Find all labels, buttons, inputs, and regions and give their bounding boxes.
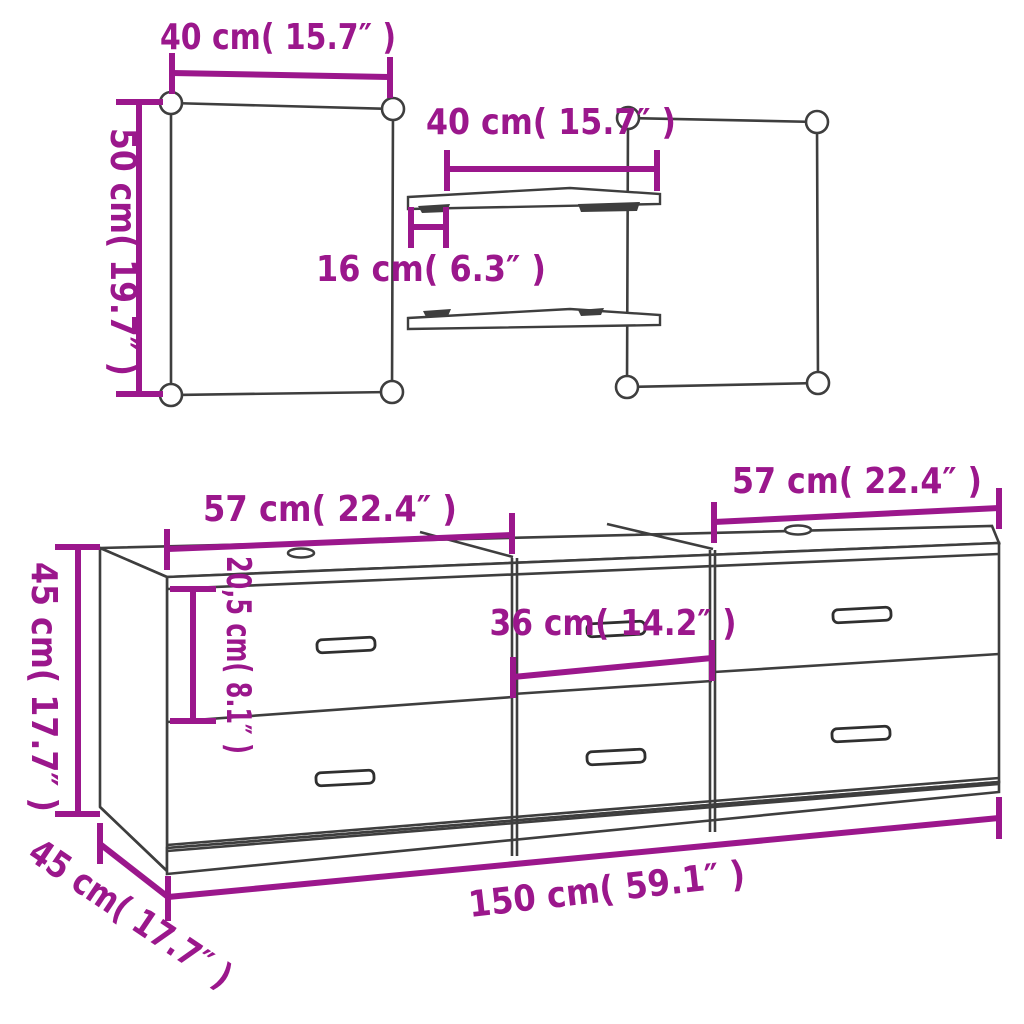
dimension-label-shelf-depth: 16 cm( 6.3″ ) [316,249,546,290]
drawer-handle-icon [587,749,646,765]
dimension-label-left-panel-width: 40 cm( 15.7″ ) [160,17,396,58]
panel-corner-dot [160,92,182,114]
dimension-label-right-unit-width: 57 cm( 22.4″ ) [732,461,982,502]
shelf-bracket [423,309,451,317]
diagram-canvas: 40 cm( 15.7″ ) 50 cm( 19.7″ ) 40 cm( 15.… [0,0,1024,1024]
dimension-diagram: 40 cm( 15.7″ ) 50 cm( 19.7″ ) 40 cm( 15.… [0,0,1024,1024]
drawer-handle-icon [832,726,891,742]
dimension-left-panel-width [172,53,390,98]
panel-corner-dot [807,372,829,394]
wall-shelf-bottom [408,308,660,329]
dimension-label-left-unit-width: 57 cm( 22.4″ ) [203,489,457,530]
dimension-shelf-width [447,150,657,191]
drawer-handle-icon [317,637,376,653]
drawer-handle-icon [833,607,892,623]
panel-corner-dot [381,381,403,403]
cabinet-left-side [100,548,167,871]
dimension-label-drawer-width: 36 cm( 14.2″ ) [490,603,737,644]
dimension-label-left-panel-height: 50 cm( 19.7″ ) [102,128,143,376]
panel-corner-dot [806,111,828,133]
right-wall-panel [616,107,829,398]
panel-corner-dot [382,98,404,120]
dimension-label-drawer-height: 20,5 cm( 8.1″ ) [218,556,258,754]
panel-corner-dot [616,376,638,398]
cable-hole [785,526,811,535]
drawer-handle-icon [316,770,375,786]
dimension-shelf-depth [411,207,446,248]
panel-corner-dot [160,384,182,406]
dimension-label-cabinet-height: 45 cm( 17.7″ ) [23,562,64,812]
dimension-label-shelf-width: 40 cm( 15.7″ ) [426,102,676,143]
cable-hole [288,549,314,558]
